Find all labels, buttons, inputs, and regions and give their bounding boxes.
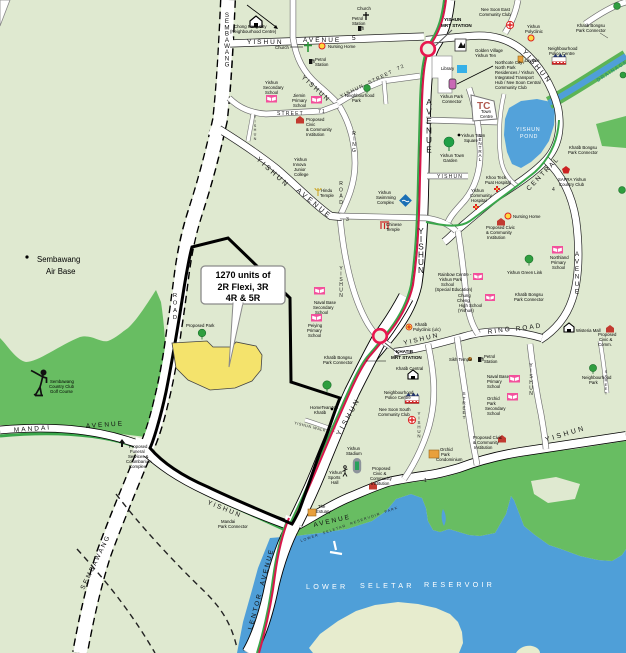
svg-text:Park Connector: Park Connector [568,150,598,155]
svg-text:Institution: Institution [306,132,325,137]
svg-text:Station: Station [315,62,329,67]
svg-text:Puat Hospital: Puat Hospital [485,180,511,185]
svg-text:RING: RING [352,131,356,154]
svg-text:School: School [293,103,306,108]
svg-text:2R Flexi, 3R: 2R Flexi, 3R [217,282,269,292]
svg-text:YISHUN: YISHUN [516,127,540,133]
svg-text:Square: Square [464,138,478,143]
svg-text:Police Centre: Police Centre [385,395,411,400]
svg-text:1270 units of: 1270 units of [215,270,271,280]
svg-text:71: 71 [318,109,326,115]
svg-text:YISHUN: YISHUN [254,115,257,141]
svg-text:Golf Course: Golf Course [50,389,74,394]
svg-text:Station: Station [484,359,498,364]
svg-text:Institution: Institution [474,445,493,450]
svg-text:MRT STATION: MRT STATION [391,355,422,360]
svg-text:AVENUE: AVENUE [303,37,341,44]
svg-text:AVENUE: AVENUE [426,98,432,155]
svg-text:School: School [315,310,328,315]
svg-text:Temple: Temple [386,227,400,232]
svg-text:STREET: STREET [277,111,304,117]
svg-text:Polyclinic (u/c): Polyclinic (u/c) [413,327,441,332]
svg-text:School: School [308,333,321,338]
svg-text:Hospital: Hospital [471,198,487,203]
svg-text:Yishun Green Link: Yishun Green Link [507,270,543,275]
svg-text:5: 5 [352,35,358,42]
svg-text:Comm.: Comm. [598,342,612,347]
svg-text:KHATIB: KHATIB [396,349,414,354]
svg-text:Church: Church [275,45,289,50]
svg-text:Condominium: Condominium [436,457,463,462]
svg-text:Sembawang: Sembawang [37,255,80,264]
svg-text:YISHUN: YISHUN [437,174,463,180]
svg-text:(Special Education): (Special Education) [435,287,473,292]
svg-text:RESERVOIR: RESERVOIR [424,580,495,589]
svg-text:Khatib: Khatib [314,410,327,415]
svg-text:Park Connector: Park Connector [514,297,544,302]
svg-text:Community Club: Community Club [479,12,511,17]
svg-text:Institution: Institution [371,481,390,486]
svg-text:Connector: Connector [442,99,462,104]
svg-text:SELETAR: SELETAR [360,581,415,590]
svg-text:Complex: Complex [377,200,395,205]
svg-text:POND: POND [520,134,538,140]
svg-text:Wisteria Mall: Wisteria Mall [576,328,601,333]
svg-text:Church: Church [357,6,371,11]
svg-text:MRT STATION: MRT STATION [441,23,472,28]
svg-text:Nursing Home: Nursing Home [328,44,356,49]
svg-text:Community Club: Community Club [495,85,527,90]
svg-text:Police Centre: Police Centre [549,51,575,56]
svg-text:Temple: Temple [320,193,334,198]
svg-text:Garden: Garden [443,158,458,163]
svg-text:Air Base: Air Base [46,267,75,276]
svg-text:School: School [265,90,278,95]
svg-text:YISHUN: YISHUN [417,411,420,439]
svg-text:Nursing Home: Nursing Home [513,214,541,219]
svg-text:Proposed Park: Proposed Park [186,323,215,328]
svg-text:Stadium: Stadium [346,451,362,456]
svg-text:Estuary: Estuary [316,509,331,514]
svg-text:Country Club: Country Club [559,182,585,187]
svg-text:4R & 5R: 4R & 5R [226,293,261,303]
svg-text:School: School [487,411,500,416]
svg-text:Complex: Complex [129,464,147,469]
svg-text:Park: Park [352,98,362,103]
svg-text:Institution: Institution [487,235,506,240]
svg-text:Library: Library [441,66,455,71]
svg-text:LOWER: LOWER [306,582,348,591]
svg-text:Park Connector: Park Connector [323,360,353,365]
svg-text:3: 3 [346,217,350,223]
svg-text:School: School [552,265,565,270]
svg-text:Hall: Hall [331,480,338,485]
svg-text:1: 1 [424,478,428,484]
svg-text:Centre: Centre [480,114,494,119]
svg-text:YISHUN: YISHUN [444,17,462,22]
svg-text:Station: Station [352,21,366,26]
svg-text:School: School [487,384,500,389]
svg-text:Park Connector: Park Connector [576,28,606,33]
svg-text:Park Connector: Park Connector [218,524,248,529]
svg-text:Polyclinic: Polyclinic [525,29,544,34]
svg-text:YISHUN: YISHUN [418,227,424,275]
svg-text:(Yishun): (Yishun) [458,308,474,313]
svg-text:Community Club: Community Club [378,412,410,417]
svg-text:College: College [294,172,309,177]
svg-text:Sikh Temple: Sikh Temple [449,357,473,362]
svg-text:Park: Park [589,380,599,385]
svg-text:(Neighbourhood Centre): (Neighbourhood Centre) [230,29,277,34]
svg-text:4: 4 [552,187,556,193]
svg-text:Khatib Central: Khatib Central [396,366,423,371]
svg-text:Yishun Ten: Yishun Ten [475,53,497,58]
